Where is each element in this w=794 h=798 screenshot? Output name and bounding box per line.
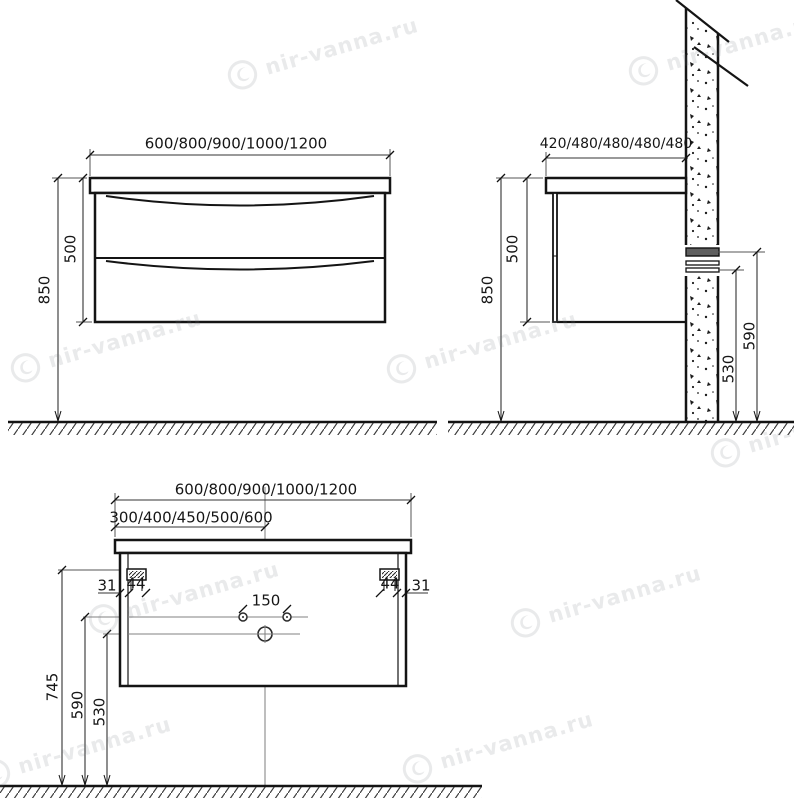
side-view-drawing (448, 0, 794, 435)
mounting-rail (684, 245, 720, 276)
side-mount-height-label: 850 (481, 276, 496, 305)
rear-bracket-width-left-label: 44 (126, 577, 145, 592)
side-depth-dimension-label: 420/480/480/480/480 (540, 137, 692, 151)
rear-faucet-spacing-label: 150 (252, 594, 281, 609)
rear-bracket-offset-right-label: 31 (411, 579, 430, 594)
rear-view-drawing (0, 487, 482, 798)
rear-bracket-offset-left-label: 31 (97, 579, 116, 594)
floor-hatch (8, 423, 437, 435)
rear-drain-height-label: 530 (93, 698, 108, 727)
rear-width-dimension-label: 600/800/900/1000/1200 (175, 483, 357, 498)
front-width-dimension-label: 600/800/900/1000/1200 (145, 137, 327, 152)
rear-center-offset-label: 300/400/450/500/600 (109, 511, 272, 526)
rear-holes-height-label: 590 (71, 691, 86, 720)
rear-bracket-height-label: 745 (46, 673, 61, 702)
front-cabinet-height-label: 500 (64, 235, 79, 264)
front-view-drawing (8, 149, 437, 435)
floor-hatch (448, 423, 794, 435)
floor-hatch (0, 787, 482, 798)
technical-drawing-canvas: 600/800/900/1000/1200 500 850 420/480/48… (0, 0, 794, 798)
side-rail-upper-height-label: 590 (743, 322, 758, 351)
vanity-installation-drawing (0, 0, 794, 798)
rear-bracket-width-right-label: 44 (380, 577, 399, 592)
front-mount-height-label: 850 (38, 276, 53, 305)
side-rail-lower-height-label: 530 (722, 355, 737, 384)
side-cabinet-height-label: 500 (506, 235, 521, 264)
